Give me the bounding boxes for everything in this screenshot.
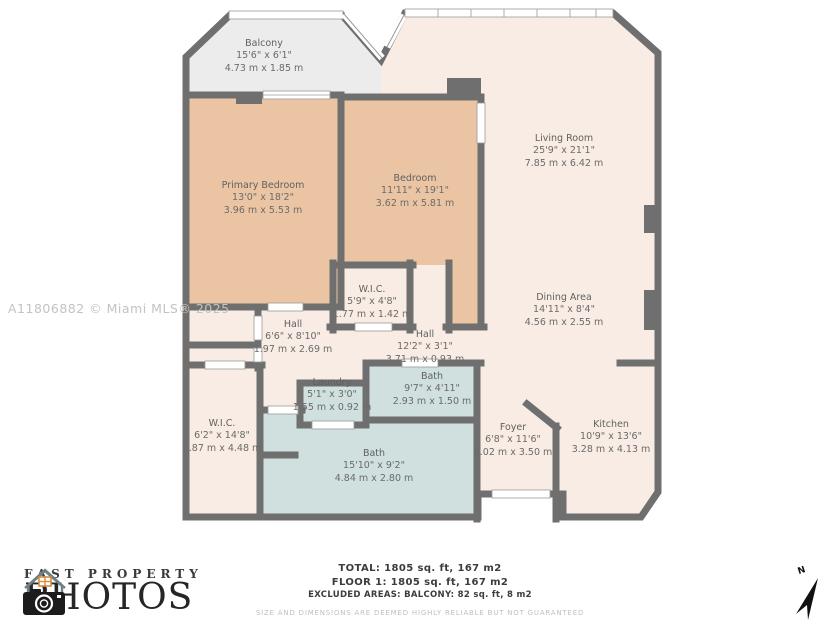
room-label-wic-bottom: W.I.C. 6'2" x 14'8" 1.87 m x 4.48 m <box>183 418 262 455</box>
room-label-dining-area: Dining Area 14'11" x 8'4" 4.56 m x 2.55 … <box>525 292 604 329</box>
wall-pillar <box>644 290 658 330</box>
room-label-balcony: Balcony 15'6" x 6'1" 4.73 m x 1.85 m <box>225 38 304 75</box>
mls-watermark: A11806882 © Miami MLS® 2025 <box>8 301 230 316</box>
room-label-living-room: Living Room 25'9" x 21'1" 7.85 m x 6.42 … <box>525 133 604 170</box>
room-label-bath-big: Bath 15'10" x 9'2" 4.84 m x 2.80 m <box>335 448 414 485</box>
house-camera-icon <box>20 564 72 620</box>
fast-property-photos-logo: FAST PROPERTY PHOTOS <box>20 564 203 615</box>
room-label-hall-left: Hall 6'6" x 8'10" 1.97 m x 2.69 m <box>254 319 333 356</box>
north-arrow-icon <box>786 554 834 626</box>
room-label-kitchen: Kitchen 10'9" x 13'6" 3.28 m x 4.13 m <box>572 419 651 456</box>
room-label-primary-bedroom: Primary Bedroom 13'0" x 18'2" 3.96 m x 5… <box>222 180 305 217</box>
room-label-laundry: Laundry 5'1" x 3'0" 1.55 m x 0.92 m <box>293 377 372 414</box>
room-label-foyer: Foyer 6'8" x 11'6" 2.02 m x 3.50 m <box>474 422 553 459</box>
entry-door <box>492 490 550 498</box>
bedroom-door <box>477 103 485 143</box>
balcony-window <box>229 11 343 19</box>
wall-pillar <box>644 205 658 233</box>
bedroom-closet-fill <box>449 265 481 327</box>
wall-pillar <box>447 78 481 100</box>
north-arrow: N <box>786 554 834 626</box>
living-room-window-band <box>405 9 613 17</box>
primary-bedroom-door <box>268 303 303 311</box>
room-label-bedroom: Bedroom 11'11" x 19'1" 3.62 m x 5.81 m <box>376 173 455 210</box>
room-label-hall-right: Hall 12'2" x 3'1" 3.71 m x 0.93 m <box>386 329 465 366</box>
laundry-door <box>312 421 354 429</box>
room-label-wic-middle: W.I.C. 5'9" x 4'8" 1.77 m x 1.42 m <box>333 284 412 321</box>
wic-bottom-door <box>205 361 245 369</box>
floorplan-page: Balcony 15'6" x 6'1" 4.73 m x 1.85 m Pri… <box>0 0 840 630</box>
wall-pillar <box>236 95 262 104</box>
room-label-bath-small: Bath 9'7" x 4'11" 2.93 m x 1.50 m <box>393 371 472 408</box>
